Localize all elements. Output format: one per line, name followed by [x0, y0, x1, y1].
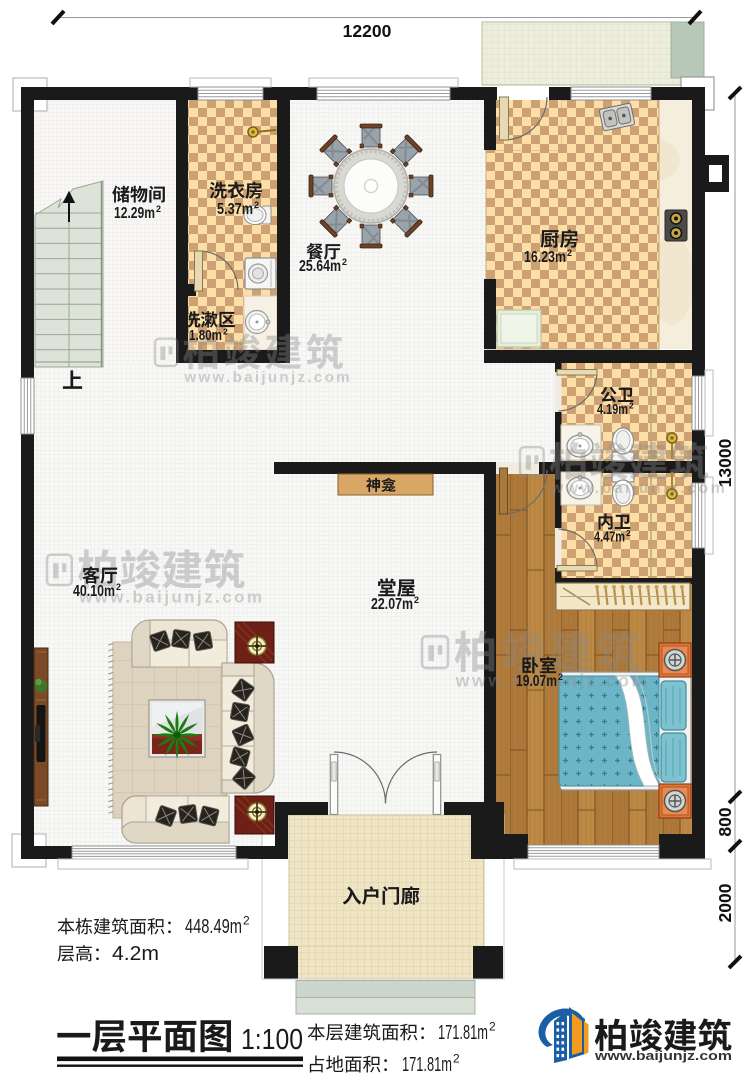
svg-text:2: 2 [489, 1020, 496, 1034]
svg-text:12200: 12200 [343, 21, 392, 41]
svg-text:2: 2 [414, 595, 419, 605]
svg-text:5.37m: 5.37m [217, 201, 253, 218]
svg-text:448.49m: 448.49m [185, 915, 242, 938]
svg-text:2000: 2000 [715, 883, 735, 922]
svg-text:2: 2 [629, 400, 634, 410]
svg-text:16.23m: 16.23m [524, 249, 566, 266]
svg-text:171.81m: 171.81m [402, 1054, 452, 1076]
svg-text:800: 800 [715, 807, 735, 836]
svg-text:40.10m: 40.10m [73, 583, 115, 600]
svg-text:2: 2 [223, 326, 228, 336]
svg-text:2: 2 [156, 204, 161, 214]
svg-text:19.07m: 19.07m [516, 673, 557, 690]
svg-text:2: 2 [243, 913, 250, 927]
svg-text:www.baijunjz.com: www.baijunjz.com [594, 1048, 732, 1063]
svg-text:2: 2 [626, 528, 631, 538]
svg-text:4.47m: 4.47m [594, 530, 625, 546]
svg-text:2: 2 [567, 248, 572, 258]
svg-text:2: 2 [342, 257, 347, 267]
svg-text:2: 2 [116, 582, 121, 592]
svg-text:2: 2 [453, 1052, 460, 1066]
svg-text:4.2m: 4.2m [112, 942, 159, 965]
svg-text:22.07m: 22.07m [371, 596, 413, 613]
svg-text:25.64m: 25.64m [299, 258, 341, 275]
svg-text:2: 2 [558, 672, 563, 682]
svg-text:www.baijunjz.com: www.baijunjz.com [183, 369, 352, 386]
svg-text:1:100: 1:100 [241, 1024, 303, 1056]
svg-text:www.baijunjz.com: www.baijunjz.com [550, 480, 728, 497]
svg-text:171.81m: 171.81m [438, 1022, 488, 1044]
svg-text:12.29m: 12.29m [114, 205, 155, 222]
svg-text:2: 2 [254, 200, 259, 210]
svg-text:1.80m: 1.80m [189, 327, 222, 344]
svg-text:4.19m: 4.19m [597, 402, 628, 418]
